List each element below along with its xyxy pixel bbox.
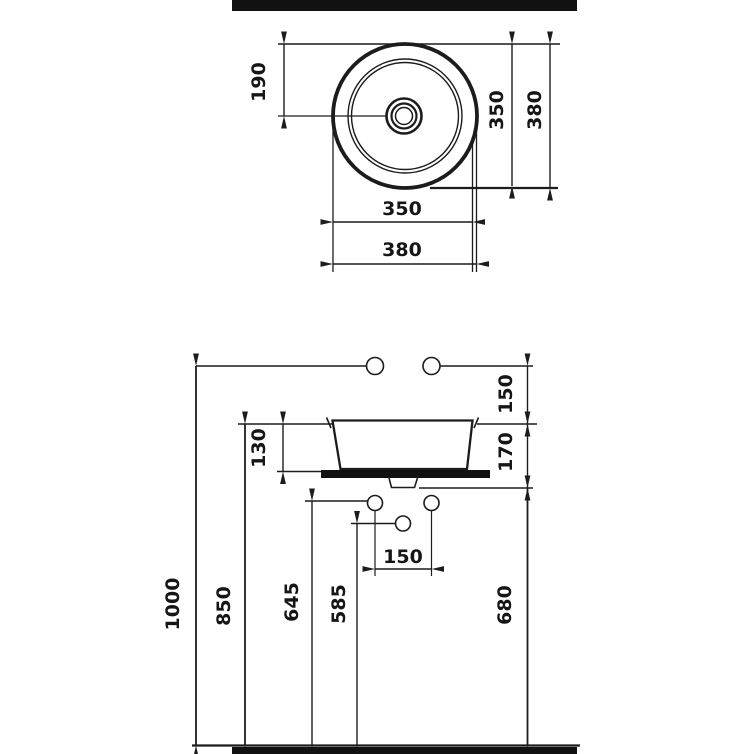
dim-tap-to-rim: 150: [495, 366, 528, 424]
dim-label-170: 170: [495, 432, 517, 472]
front-view: 1000 850 645 585 680 150 170 130: [162, 358, 537, 746]
dim-label-190: 190: [248, 62, 270, 102]
dim-supply-spacing: 150: [375, 546, 432, 569]
dim-label-585: 585: [328, 584, 350, 624]
dim-inner-diameter-vertical: 350: [486, 44, 512, 186]
top-view: 190 350 380 350 380: [248, 44, 560, 272]
countertop-bar: [321, 470, 490, 478]
dim-label-350-horizontal: 350: [382, 198, 422, 220]
dim-label-150-bottom: 150: [383, 546, 423, 568]
dim-rim-height: 850: [213, 424, 245, 746]
dim-label-1000: 1000: [162, 578, 184, 631]
tap-hole-left: [367, 358, 384, 375]
dim-basin-height: 130: [248, 424, 283, 472]
dim-label-380-vertical: 380: [524, 90, 546, 130]
dim-tap-height: 1000: [162, 366, 196, 746]
drain-fitting: [389, 478, 418, 488]
dim-label-645: 645: [281, 582, 303, 622]
basin-profile: [327, 418, 479, 470]
dim-label-130: 130: [248, 428, 270, 468]
dim-drain-height: 585: [328, 524, 357, 746]
floor-bar: [232, 747, 577, 754]
dim-center-offset: 190: [248, 44, 284, 116]
dim-label-380-horizontal: 380: [382, 239, 422, 261]
rim-edge-left: [327, 418, 332, 429]
dim-rim-to-underside: 170: [495, 424, 528, 488]
dim-label-350-vertical: 350: [486, 90, 508, 130]
floor-section: [192, 746, 580, 754]
tap-hole-right: [423, 358, 440, 375]
drain-outlet-hole: [396, 516, 411, 531]
dim-supply-height: 645: [281, 501, 312, 746]
dim-label-680: 680: [494, 585, 516, 625]
basin-body: [333, 421, 473, 470]
drain-hole-circle: [396, 108, 413, 125]
dim-outer-diameter-vertical: 380: [524, 44, 550, 188]
dim-label-150-right: 150: [495, 374, 517, 414]
wall-bar: [232, 0, 577, 11]
dim-inner-diameter-horizontal: 350: [333, 198, 473, 222]
wall-section-top: [232, 0, 577, 11]
supply-hole-right: [424, 496, 439, 511]
dim-outer-diameter-horizontal: 380: [333, 239, 477, 264]
washbasin-technical-drawing: 190 350 380 350 380: [0, 0, 754, 754]
rim-edge-right: [474, 418, 479, 429]
supply-hole-left: [368, 496, 383, 511]
dim-underside-height: 680: [494, 488, 528, 746]
drain-plan: [387, 99, 422, 134]
dim-label-850: 850: [213, 586, 235, 626]
